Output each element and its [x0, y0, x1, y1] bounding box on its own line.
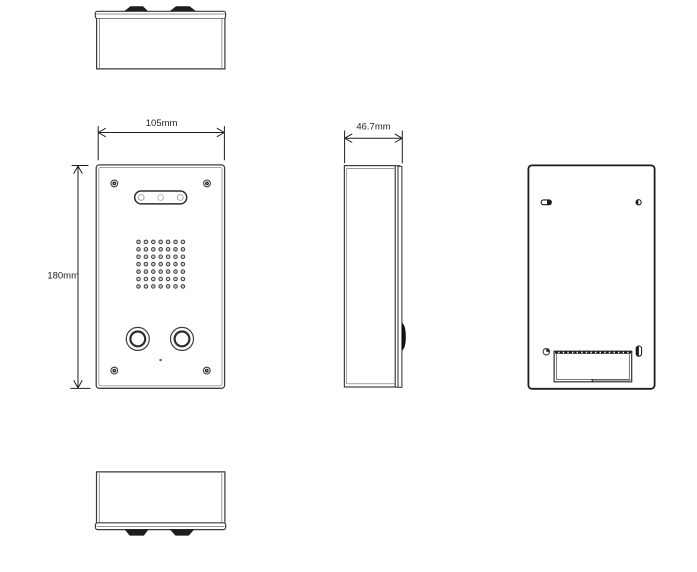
- svg-text:180mm: 180mm: [47, 271, 79, 282]
- svg-text:105mm: 105mm: [146, 118, 178, 129]
- svg-text:46.7mm: 46.7mm: [356, 122, 390, 133]
